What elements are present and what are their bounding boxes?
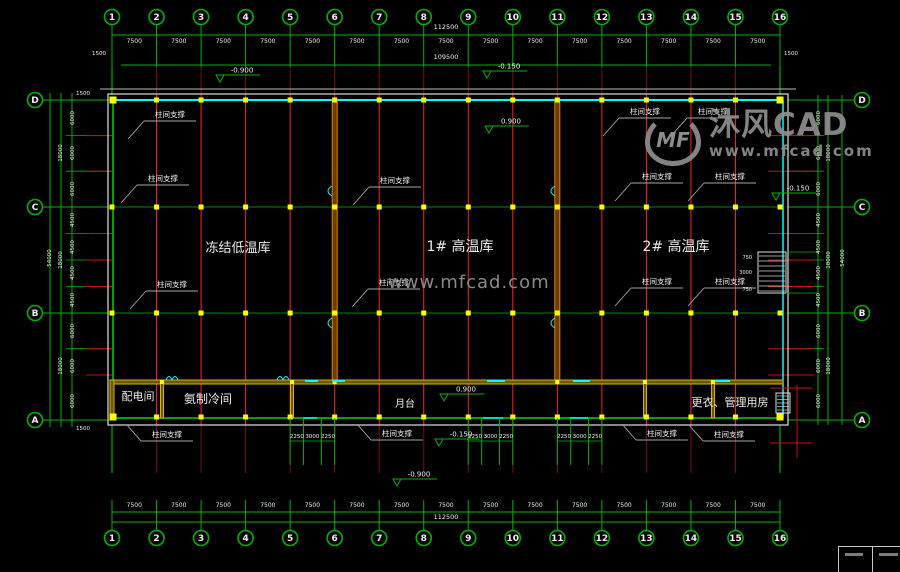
column-marker	[110, 205, 115, 210]
column-marker	[644, 98, 649, 103]
column-marker	[599, 98, 604, 103]
grid-bubble-bottom-8-label: 8	[421, 534, 427, 544]
room-label-7: 更衣、管理用房	[692, 395, 769, 409]
elevation-value: -0.150	[787, 185, 810, 193]
bay-dim-bottom: 7500	[216, 502, 231, 509]
grid-bubble-top-13-label: 13	[640, 13, 653, 23]
column-marker	[599, 205, 604, 210]
column-marker	[199, 98, 204, 103]
platform-dim-text: 3000	[573, 434, 587, 440]
side-sub-dim-right: 6000	[816, 359, 822, 373]
bay-dim-top: 7500	[438, 38, 453, 45]
bay-dim-top: 7500	[216, 38, 231, 45]
column-marker	[555, 311, 560, 316]
column-marker	[332, 311, 337, 316]
column-marker	[421, 311, 426, 316]
grid-bubble-bottom-12-label: 12	[596, 534, 609, 544]
grid-bubble-bottom-4-label: 4	[242, 534, 248, 544]
side-span-dim-right: 18000	[826, 357, 832, 375]
elevation-triangle	[485, 126, 493, 133]
grid-bubble-bottom-3-label: 3	[198, 534, 204, 544]
column-marker	[332, 205, 337, 210]
bay-dim-bottom: 7500	[349, 502, 364, 509]
bay-dim-top: 7500	[750, 38, 765, 45]
bracing-leader-diag	[688, 183, 704, 201]
grid-bubble-bottom-9-label: 9	[465, 534, 471, 544]
bracing-label: 柱间支撑	[630, 106, 660, 116]
column-marker	[154, 98, 159, 103]
side-offset-bottom: 1500	[76, 426, 90, 432]
side-sub-dim-left: 6000	[70, 111, 76, 125]
grid-bubble-top-14-label: 14	[685, 13, 698, 23]
column-marker	[510, 98, 515, 103]
side-sub-dim-left: 6000	[70, 359, 76, 373]
column-marker	[243, 311, 248, 316]
total-dim-top: 112500	[434, 23, 459, 31]
column-marker	[154, 311, 159, 316]
bracing-label: 柱间支撑	[155, 109, 185, 119]
side-sub-dim-right: 4500	[816, 266, 822, 280]
grid-bubble-top-4-label: 4	[242, 13, 248, 23]
bay-dim-bottom: 7500	[706, 502, 721, 509]
grid-bubble-left-B-label: B	[32, 309, 39, 319]
platform-dim-text: 2250	[290, 434, 304, 440]
side-total-left: 54000	[47, 249, 53, 267]
bracing-leader-diag	[130, 291, 146, 309]
bracing-leader-diag	[622, 424, 636, 440]
titleblock-fragment	[838, 546, 900, 572]
column-marker	[377, 415, 382, 420]
room-wall-2	[644, 380, 647, 418]
grid-bubble-bottom-7-label: 7	[376, 534, 382, 544]
bay-dim-top: 7500	[572, 38, 587, 45]
column-marker	[199, 205, 204, 210]
side-sub-dim-right: 6000	[816, 146, 822, 160]
bracing-leader-diag	[357, 424, 371, 440]
platform-dim-text: 2250	[321, 434, 335, 440]
bracing-label: 柱间支撑	[714, 429, 744, 439]
column-marker	[421, 415, 426, 420]
bay-dim-bottom: 7500	[616, 502, 631, 509]
side-sub-dim-right: 4500	[816, 240, 822, 254]
column-marker	[510, 205, 515, 210]
elevation-value: -0.150	[498, 63, 521, 71]
side-sub-dim-right: 4500	[816, 213, 822, 227]
door-arc	[277, 377, 289, 381]
grid-bubble-bottom-16-label: 16	[774, 534, 787, 544]
elevation-value: -0.900	[231, 67, 254, 75]
bay-dim-top: 7500	[305, 38, 320, 45]
bracing-leader-diag	[353, 187, 369, 205]
elevation-value: -0.150	[450, 431, 473, 439]
bay-dim-bottom: 7500	[661, 502, 676, 509]
side-sub-dim-left: 6000	[70, 182, 76, 196]
side-sub-dim-left: 4500	[70, 293, 76, 307]
grid-bubble-top-1-label: 1	[109, 13, 115, 23]
grid-bubble-right-B-label: B	[859, 309, 866, 319]
room-label-4: 配电间	[122, 390, 155, 403]
bay-dim-top: 7500	[483, 38, 498, 45]
column-marker	[377, 205, 382, 210]
south-wall	[113, 380, 783, 384]
elevation-triangle	[440, 394, 448, 401]
bay-dim-top: 7500	[616, 38, 631, 45]
column-marker	[555, 380, 559, 384]
bay-dim-bottom: 7500	[527, 502, 542, 509]
column-marker	[421, 98, 426, 103]
grid-bubble-left-C-label: C	[32, 203, 39, 213]
grid-bubble-top-10-label: 10	[507, 13, 520, 23]
column-marker	[154, 205, 159, 210]
grid-bubble-bottom-15-label: 15	[729, 534, 742, 544]
grid-bubble-top-11-label: 11	[551, 13, 564, 23]
side-sub-dim-left: 4500	[70, 266, 76, 280]
bracing-label: 柱间支撑	[379, 277, 409, 287]
bay-dim-top: 7500	[260, 38, 275, 45]
column-marker	[688, 98, 693, 103]
room-label-1: 冻结低温库	[205, 240, 270, 256]
door-arc	[328, 318, 332, 328]
platform-dim-text: 2250	[557, 434, 571, 440]
door-arc	[166, 377, 178, 381]
bracing-leader-diag	[688, 288, 704, 306]
column-marker	[377, 311, 382, 316]
side-span-dim-left: 18000	[58, 144, 64, 162]
bay-dim-bottom: 7500	[394, 502, 409, 509]
bay-dim-bottom: 7500	[750, 502, 765, 509]
side-sub-dim-right: 6000	[816, 324, 822, 338]
side-sub-dim-right: 4500	[816, 293, 822, 307]
column-marker	[243, 98, 248, 103]
grid-bubble-top-16-label: 16	[774, 13, 787, 23]
grid-bubble-bottom-2-label: 2	[153, 534, 159, 544]
column-marker	[733, 415, 738, 420]
column-marker	[160, 380, 164, 384]
bracing-leader-diag	[128, 121, 144, 139]
bracing-leader-diag	[352, 289, 368, 307]
bracing-label: 柱间支撑	[157, 279, 187, 289]
elevation-triangle	[216, 75, 224, 82]
total-dim-bottom: 112500	[434, 513, 459, 521]
bracing-label: 柱间支撑	[642, 276, 672, 286]
grid-bubble-top-12-label: 12	[596, 13, 609, 23]
side-offset-top: 1500	[76, 91, 90, 97]
grid-bubble-right-C-label: C	[859, 203, 866, 213]
column-marker	[644, 205, 649, 210]
grid-bubble-left-A-label: A	[32, 416, 39, 426]
grid-bubble-top-5-label: 5	[287, 13, 293, 23]
side-span-dim-right: 18000	[826, 144, 832, 162]
elevation-triangle	[772, 193, 780, 200]
room-wall-0	[161, 380, 164, 418]
bay-dim-top: 7500	[706, 38, 721, 45]
column-marker	[644, 311, 649, 316]
elevation-triangle	[435, 439, 443, 446]
side-total-right: 54000	[840, 249, 846, 267]
floorplan-drawing: 2250300022502250300022502250300022507503…	[0, 0, 900, 572]
bracing-label: 柱间支撑	[152, 429, 182, 439]
column-marker	[290, 380, 294, 384]
elevation-value: -0.900	[408, 471, 431, 479]
grid-bubble-bottom-10-label: 10	[507, 534, 520, 544]
grid-bubble-bottom-11-label: 11	[551, 534, 564, 544]
column-marker	[778, 205, 783, 210]
cad-floorplan-canvas: 2250300022502250300022502250300022507503…	[0, 0, 900, 572]
grid-bubble-right-A-label: A	[859, 416, 866, 426]
grid-bubble-top-9-label: 9	[465, 13, 471, 23]
corner-column	[777, 97, 784, 104]
side-sub-dim-left: 6000	[70, 146, 76, 160]
bay-dim-bottom: 7500	[305, 502, 320, 509]
bay-dim-bottom: 7500	[127, 502, 142, 509]
grid-bubble-bottom-6-label: 6	[332, 534, 338, 544]
grid-bubble-right-D-label: D	[858, 96, 865, 106]
titleblock-text-blur	[845, 553, 863, 556]
grid-bubble-bottom-1-label: 1	[109, 534, 115, 544]
end-offset-right: 1500	[784, 51, 798, 57]
room-label-5: 氨制冷间	[184, 392, 232, 406]
bay-dim-bottom: 7500	[572, 502, 587, 509]
building-outline	[108, 94, 788, 425]
bracing-leader-diag	[671, 118, 687, 136]
bracing-leader-diag	[121, 185, 137, 203]
grid-bubble-bottom-5-label: 5	[287, 534, 293, 544]
column-marker	[466, 311, 471, 316]
bay-dim-bottom: 7500	[483, 502, 498, 509]
side-span-dim-right: 18000	[826, 251, 832, 269]
bay-dim-bottom: 7500	[171, 502, 186, 509]
column-marker	[688, 415, 693, 420]
column-marker	[110, 311, 115, 316]
bay-dim-top: 7500	[349, 38, 364, 45]
platform-dim-text: 3000	[305, 434, 319, 440]
column-marker	[288, 311, 293, 316]
column-marker	[466, 205, 471, 210]
platform-dim-text: 2250	[499, 434, 513, 440]
column-marker	[243, 415, 248, 420]
corner-column	[110, 414, 117, 421]
grid-bubble-bottom-13-label: 13	[640, 534, 653, 544]
elevation-value: 0.900	[456, 386, 476, 394]
bracing-leader-diag	[615, 183, 631, 201]
side-sub-dim-left: 6000	[70, 394, 76, 408]
side-sub-dim-right: 6000	[816, 182, 822, 196]
grid-bubble-bottom-14-label: 14	[685, 534, 698, 544]
elevation-triangle	[393, 479, 401, 486]
column-marker	[332, 98, 337, 103]
bracing-label: 柱间支撑	[715, 171, 745, 181]
bay-dim-top: 7500	[171, 38, 186, 45]
side-span-dim-left: 18000	[58, 251, 64, 269]
bracing-label: 柱间支撑	[647, 428, 677, 438]
column-marker	[288, 98, 293, 103]
bracing-label: 柱间支撑	[382, 428, 412, 438]
column-marker	[599, 311, 604, 316]
grid-bubble-left-D-label: D	[31, 96, 38, 106]
bracing-label: 柱间支撑	[642, 171, 672, 181]
elevation-triangle	[483, 71, 491, 78]
bay-dim-bottom: 7500	[438, 502, 453, 509]
platform-dim-text: 2250	[588, 434, 602, 440]
side-sub-dim-left: 4500	[70, 213, 76, 227]
platform-dim-text: 3000	[484, 434, 498, 440]
column-marker	[243, 205, 248, 210]
door-arc	[328, 186, 332, 196]
column-marker	[555, 205, 560, 210]
corner-column	[777, 414, 784, 421]
side-sub-dim-right: 6000	[816, 111, 822, 125]
grid-bubble-top-3-label: 3	[198, 13, 204, 23]
column-marker	[733, 311, 738, 316]
grid-bubble-top-6-label: 6	[332, 13, 338, 23]
side-sub-dim-left: 4500	[70, 240, 76, 254]
room-label-3: 2# 高温库	[642, 238, 709, 255]
grid-bubble-top-7-label: 7	[376, 13, 382, 23]
grid-bubble-top-2-label: 2	[153, 13, 159, 23]
column-marker	[199, 311, 204, 316]
room-wall-1	[291, 380, 294, 418]
partition-wall-2	[555, 100, 560, 382]
bay-dim-top: 7500	[127, 38, 142, 45]
bracing-label: 柱间支撑	[148, 173, 178, 183]
side-sub-dim-right: 6000	[816, 394, 822, 408]
column-marker	[288, 205, 293, 210]
column-marker	[644, 415, 649, 420]
column-marker	[733, 205, 738, 210]
bracing-label: 柱间支撑	[698, 106, 728, 116]
bracing-leader-diag	[127, 425, 141, 441]
corner-column	[110, 97, 117, 104]
column-marker	[466, 98, 471, 103]
bracing-leader-diag	[615, 288, 631, 306]
side-span-dim-left: 18000	[58, 357, 64, 375]
titleblock-divider	[872, 547, 873, 572]
titleblock-text-blur	[879, 553, 898, 556]
column-marker	[199, 415, 204, 420]
grid-bubble-top-8-label: 8	[421, 13, 427, 23]
bay-dim-top: 7500	[661, 38, 676, 45]
dock-dim-text: 3000	[739, 270, 752, 276]
column-marker	[510, 311, 515, 316]
bay-dim-top: 7500	[527, 38, 542, 45]
column-marker	[643, 380, 647, 384]
room-label-2: 1# 高温库	[426, 238, 493, 255]
elevation-value: 0.900	[501, 118, 521, 126]
bracing-label: 柱间支撑	[380, 175, 410, 185]
grid-bubble-top-15-label: 15	[729, 13, 742, 23]
column-marker	[711, 380, 715, 384]
column-marker	[421, 205, 426, 210]
partition-wall-1	[332, 100, 337, 382]
column-marker	[688, 205, 693, 210]
inner-total-dim-top: 109500	[434, 53, 459, 61]
end-offset-left: 1500	[92, 51, 106, 57]
column-marker	[778, 311, 783, 316]
dock-dim-text: 750	[742, 255, 752, 261]
strip-wall-west	[110, 380, 114, 418]
bay-dim-bottom: 7500	[260, 502, 275, 509]
bay-dim-top: 7500	[394, 38, 409, 45]
column-marker	[688, 311, 693, 316]
bracing-leader-diag	[603, 118, 619, 136]
bracing-label: 柱间支撑	[715, 276, 745, 286]
column-marker	[733, 98, 738, 103]
room-label-6: 月台	[395, 397, 415, 410]
column-marker	[377, 98, 382, 103]
column-marker	[154, 415, 159, 420]
side-sub-dim-left: 6000	[70, 324, 76, 338]
column-marker	[555, 98, 560, 103]
